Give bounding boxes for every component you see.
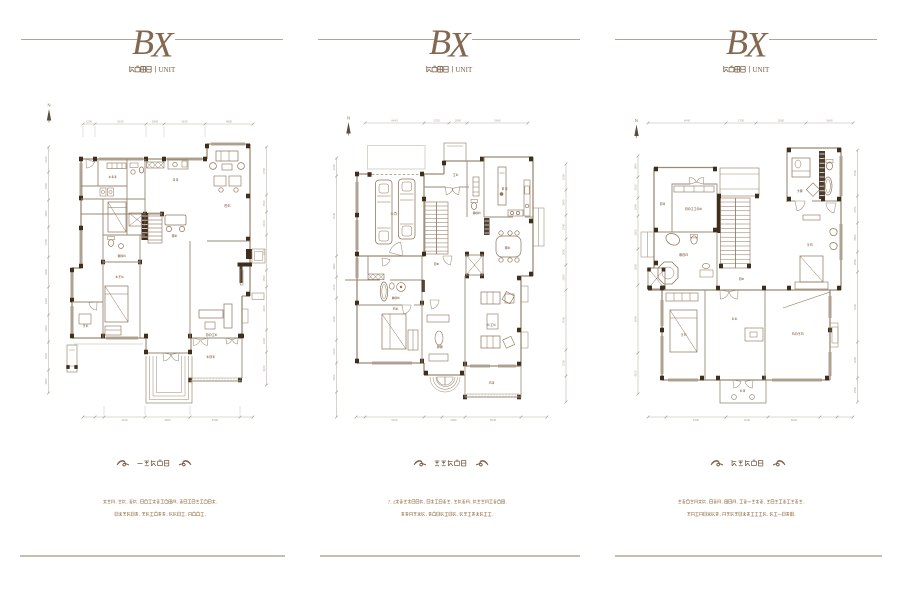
svg-text:2400: 2400 — [44, 182, 48, 189]
svg-text:7040: 7040 — [332, 212, 336, 219]
svg-text:1800: 1800 — [633, 163, 637, 170]
svg-text:2400: 2400 — [44, 268, 48, 275]
svg-text:6800: 6800 — [633, 315, 637, 322]
svg-text:3100: 3100 — [262, 365, 266, 372]
svg-text:1500: 1500 — [561, 173, 565, 180]
svg-text:2400: 2400 — [853, 386, 857, 393]
svg-text:6440: 6440 — [684, 118, 691, 122]
svg-text:5100: 5100 — [117, 119, 124, 123]
svg-text:X: X — [150, 25, 176, 65]
svg-text:1700: 1700 — [433, 118, 440, 122]
svg-text:4200: 4200 — [744, 418, 751, 422]
svg-text:5640: 5640 — [826, 118, 833, 122]
svg-text:3300: 3300 — [633, 229, 637, 236]
svg-text:7000: 7000 — [561, 316, 565, 323]
svg-text:2100: 2100 — [633, 184, 637, 191]
svg-text:2000: 2000 — [853, 258, 857, 265]
svg-text:1700: 1700 — [738, 118, 745, 122]
svg-text:2900: 2900 — [853, 234, 857, 241]
svg-text:4100: 4100 — [181, 119, 188, 123]
svg-text:4100: 4100 — [121, 418, 128, 422]
svg-text:7000: 7000 — [853, 303, 857, 310]
svg-text:5200: 5200 — [791, 418, 798, 422]
svg-text:1800: 1800 — [332, 263, 336, 270]
svg-text:2400: 2400 — [44, 352, 48, 359]
svg-text:1800: 1800 — [633, 203, 637, 210]
svg-text:4700: 4700 — [262, 167, 266, 174]
svg-text:2100: 2100 — [332, 348, 336, 355]
svg-text:2700: 2700 — [561, 223, 565, 230]
svg-text:1500: 1500 — [561, 274, 565, 281]
svg-text:1200: 1200 — [86, 119, 93, 123]
svg-text:X: X — [744, 25, 770, 65]
svg-text:1500: 1500 — [262, 200, 266, 207]
svg-text:6440: 6440 — [391, 118, 398, 122]
svg-text:1800: 1800 — [44, 378, 48, 385]
svg-text:3600: 3600 — [853, 356, 857, 363]
svg-text:UNIT: UNIT — [159, 66, 176, 74]
svg-text:2060: 2060 — [450, 418, 457, 422]
svg-text:N: N — [635, 118, 638, 123]
svg-text:2700: 2700 — [44, 238, 48, 245]
svg-text:1800: 1800 — [44, 210, 48, 217]
svg-text:5640: 5640 — [490, 418, 497, 422]
svg-text:3600: 3600 — [633, 263, 637, 270]
svg-text:X: X — [447, 25, 473, 65]
svg-text:5100: 5100 — [212, 418, 219, 422]
svg-text:2400: 2400 — [44, 325, 48, 332]
svg-text:2100: 2100 — [44, 156, 48, 163]
svg-text:2060: 2060 — [455, 118, 462, 122]
svg-text:2100: 2100 — [262, 220, 266, 227]
svg-text:UNIT: UNIT — [456, 66, 473, 74]
svg-text:1500: 1500 — [262, 275, 266, 282]
svg-text:1500: 1500 — [332, 163, 336, 170]
svg-text:UNIT: UNIT — [753, 66, 770, 74]
svg-text:1740: 1740 — [332, 284, 336, 291]
svg-text:2100: 2100 — [44, 297, 48, 304]
svg-text:4800: 4800 — [226, 119, 233, 123]
svg-text:2060: 2060 — [778, 118, 785, 122]
svg-text:5100: 5100 — [693, 418, 700, 422]
svg-text:4700: 4700 — [853, 169, 857, 176]
svg-text:3100: 3100 — [561, 359, 565, 366]
svg-text:4100: 4100 — [262, 305, 266, 312]
svg-text:3600: 3600 — [332, 315, 336, 322]
svg-text:3000: 3000 — [561, 199, 565, 206]
svg-text:3000: 3000 — [561, 248, 565, 255]
svg-text:4100: 4100 — [633, 370, 637, 377]
svg-text:1800: 1800 — [152, 119, 159, 123]
svg-text:2700: 2700 — [853, 206, 857, 213]
svg-text:N: N — [347, 116, 350, 121]
svg-text:2100: 2100 — [262, 337, 266, 344]
svg-text:N: N — [47, 103, 50, 108]
svg-text:4600: 4600 — [164, 418, 171, 422]
svg-text:5640: 5640 — [494, 118, 501, 122]
svg-text:5100: 5100 — [391, 418, 398, 422]
svg-text:2700: 2700 — [332, 374, 336, 381]
